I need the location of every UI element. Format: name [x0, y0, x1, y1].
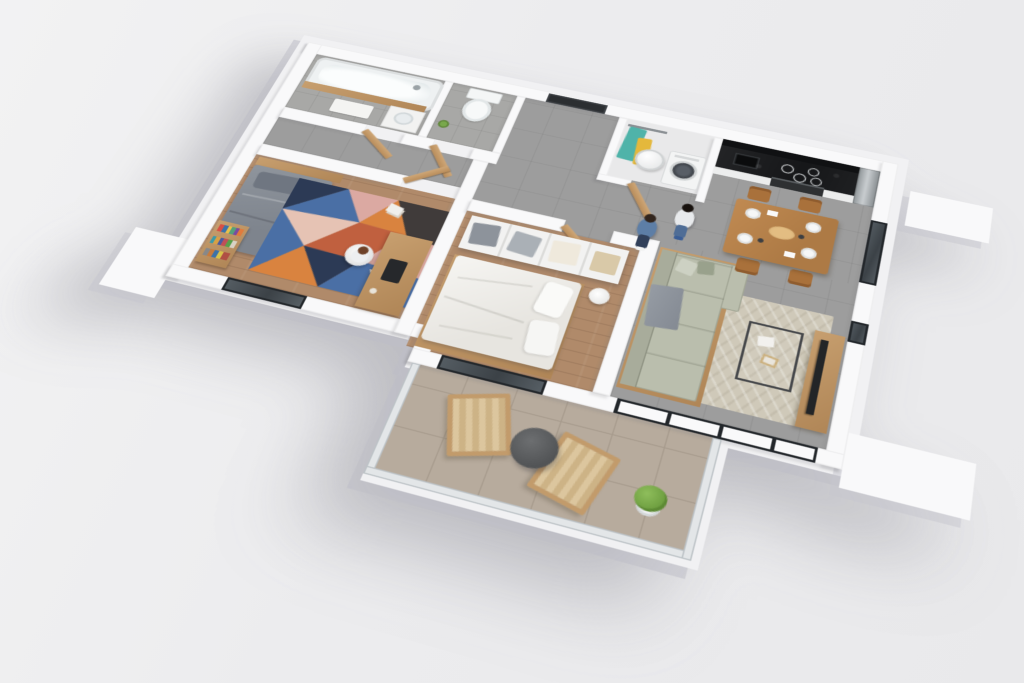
bedroom2-pillow-1: [531, 280, 575, 319]
plate-1: [744, 207, 762, 220]
napkin-1: [767, 210, 779, 217]
magazine-1: [757, 336, 774, 348]
architectural-render-canvas: { "scene": { "type": "3d-floorplan-rende…: [0, 0, 1024, 683]
window-east-small: [847, 321, 869, 346]
exterior-wall-stub-northeast: [905, 191, 993, 243]
wardrobe-clothes-4: [589, 251, 621, 276]
washbasin: [391, 111, 416, 127]
exterior-wall-stub-southeast: [839, 433, 977, 521]
lounge-chair-1: [447, 394, 512, 457]
bedroom2-pillow-2: [523, 319, 561, 357]
wardrobe-clothes-2: [506, 231, 543, 258]
magazine-2: [759, 353, 779, 368]
wardrobe-clothes-1: [468, 222, 502, 247]
blue-slides: [673, 235, 683, 240]
apartment-3d-model: [80, 42, 898, 613]
plate-3: [805, 221, 823, 234]
washer-door-icon: [670, 161, 696, 180]
laptop: [380, 258, 408, 284]
serving-platter: [767, 224, 796, 241]
white-sneakers: [635, 246, 645, 252]
sofa-pillow-2: [697, 261, 715, 276]
plate-4: [800, 246, 818, 260]
plate-2: [736, 232, 754, 246]
sofa-throw-blanket: [644, 284, 684, 331]
wardrobe-clothes-3: [548, 240, 582, 266]
napkin-2: [784, 251, 796, 259]
